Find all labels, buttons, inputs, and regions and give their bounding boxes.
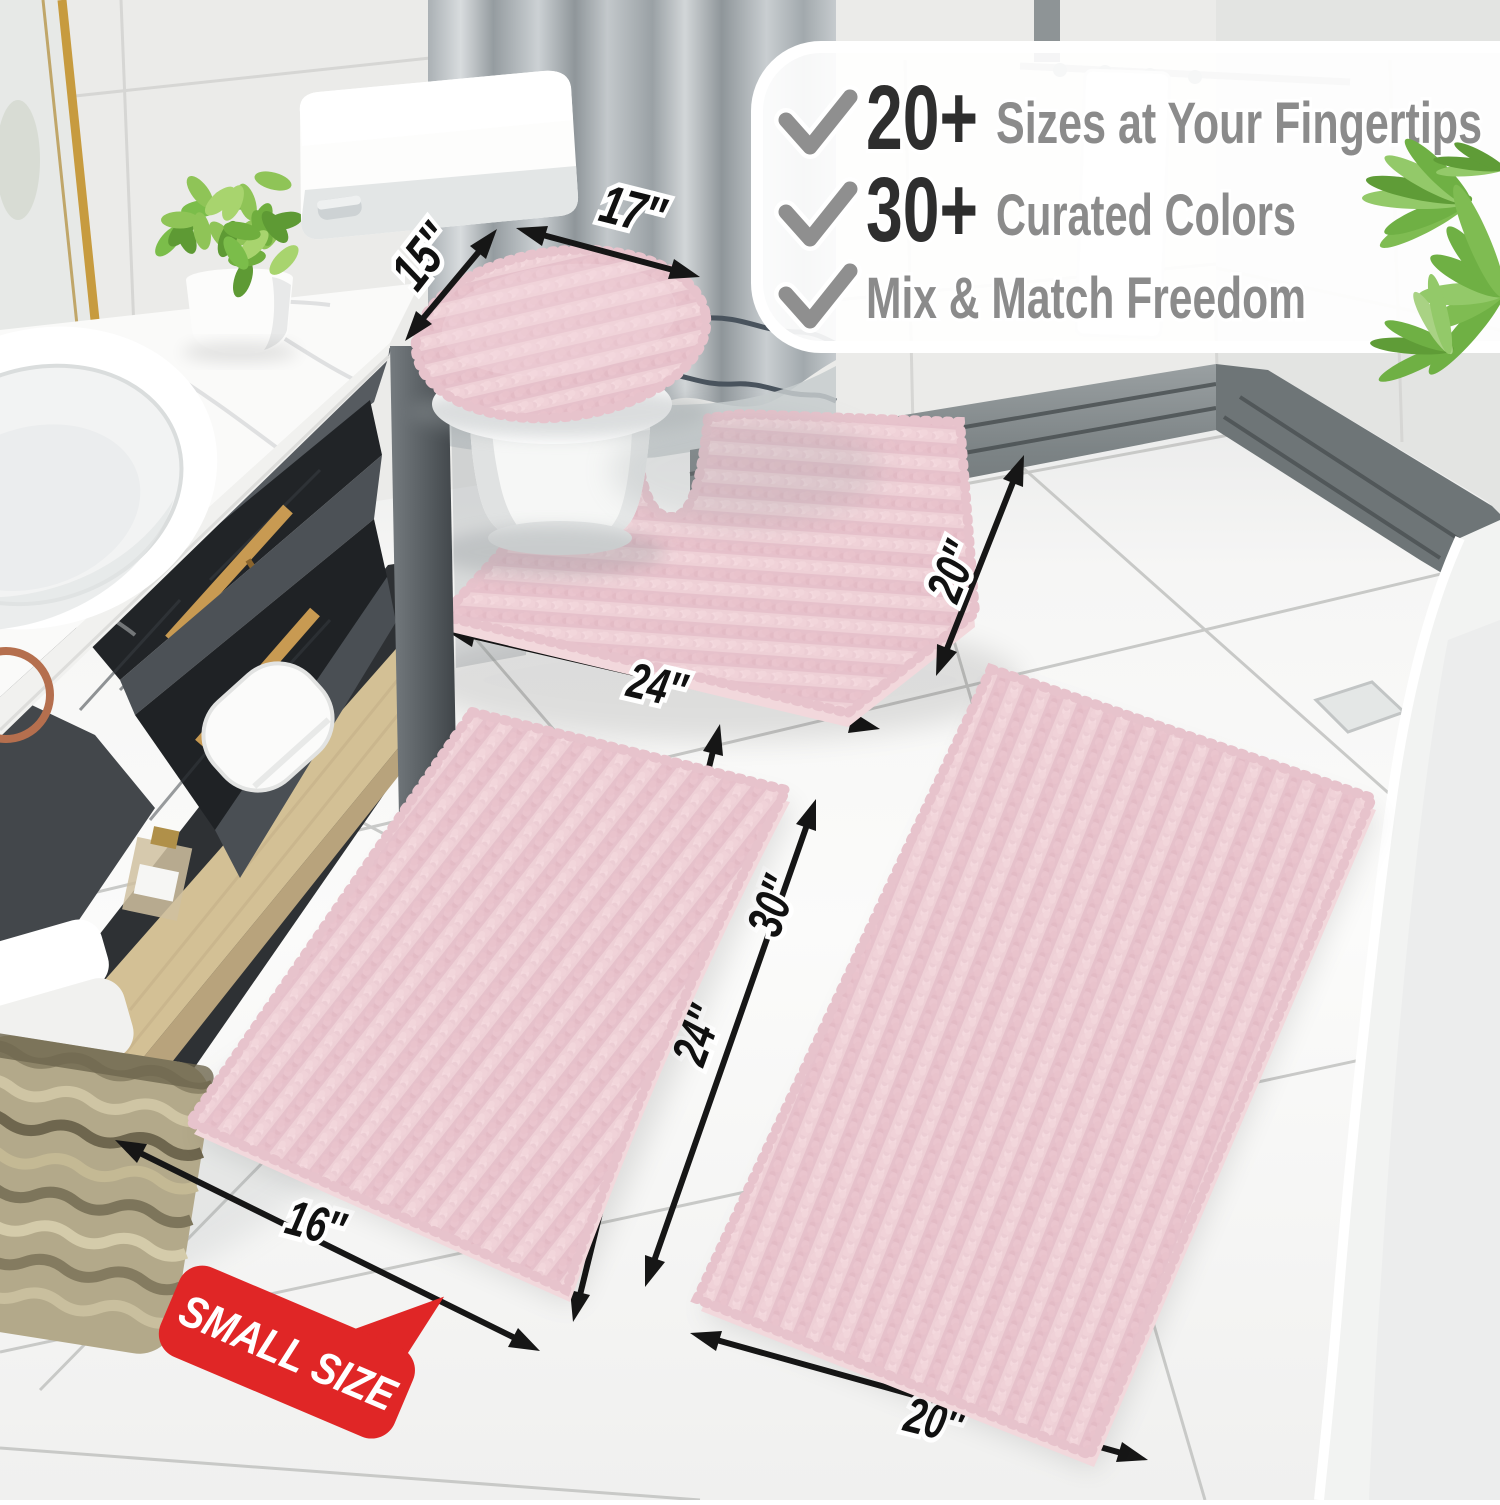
- svg-text:Curated Colors: Curated Colors: [996, 183, 1296, 248]
- svg-text:Mix & Match Freedom: Mix & Match Freedom: [866, 266, 1306, 331]
- svg-text:30+: 30+: [866, 159, 978, 261]
- svg-text:20+: 20+: [866, 67, 978, 169]
